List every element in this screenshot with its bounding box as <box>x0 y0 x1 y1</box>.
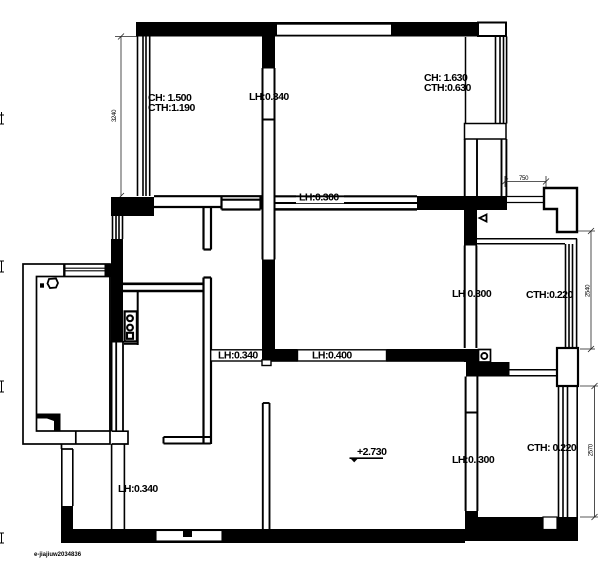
svg-text:LH:0.300: LH:0.300 <box>299 192 339 204</box>
svg-text:LH:0.340: LH:0.340 <box>118 483 158 495</box>
svg-text:CTH: 0.220: CTH: 0.220 <box>527 442 577 454</box>
svg-text:+2.730: +2.730 <box>357 446 387 458</box>
svg-text:CTH:0.630: CTH:0.630 <box>424 82 472 94</box>
svg-text:3240: 3240 <box>112 109 118 122</box>
svg-text:2540: 2540 <box>586 284 592 297</box>
svg-text:750: 750 <box>519 176 529 182</box>
svg-text:LH:0.400: LH:0.400 <box>312 350 352 362</box>
svg-text:CTH:1.190: CTH:1.190 <box>148 102 196 114</box>
svg-text:LH:0. 300: LH:0. 300 <box>452 454 495 466</box>
svg-text:CTH:0.220: CTH:0.220 <box>526 289 574 301</box>
svg-text:LH 0.300: LH 0.300 <box>452 288 492 300</box>
svg-text:LH:0.340: LH:0.340 <box>218 350 258 362</box>
svg-text:2570: 2570 <box>589 443 595 456</box>
svg-text:e-jiajiuw2034836: e-jiajiuw2034836 <box>34 552 82 558</box>
svg-text:LH:0.340: LH:0.340 <box>249 91 289 103</box>
